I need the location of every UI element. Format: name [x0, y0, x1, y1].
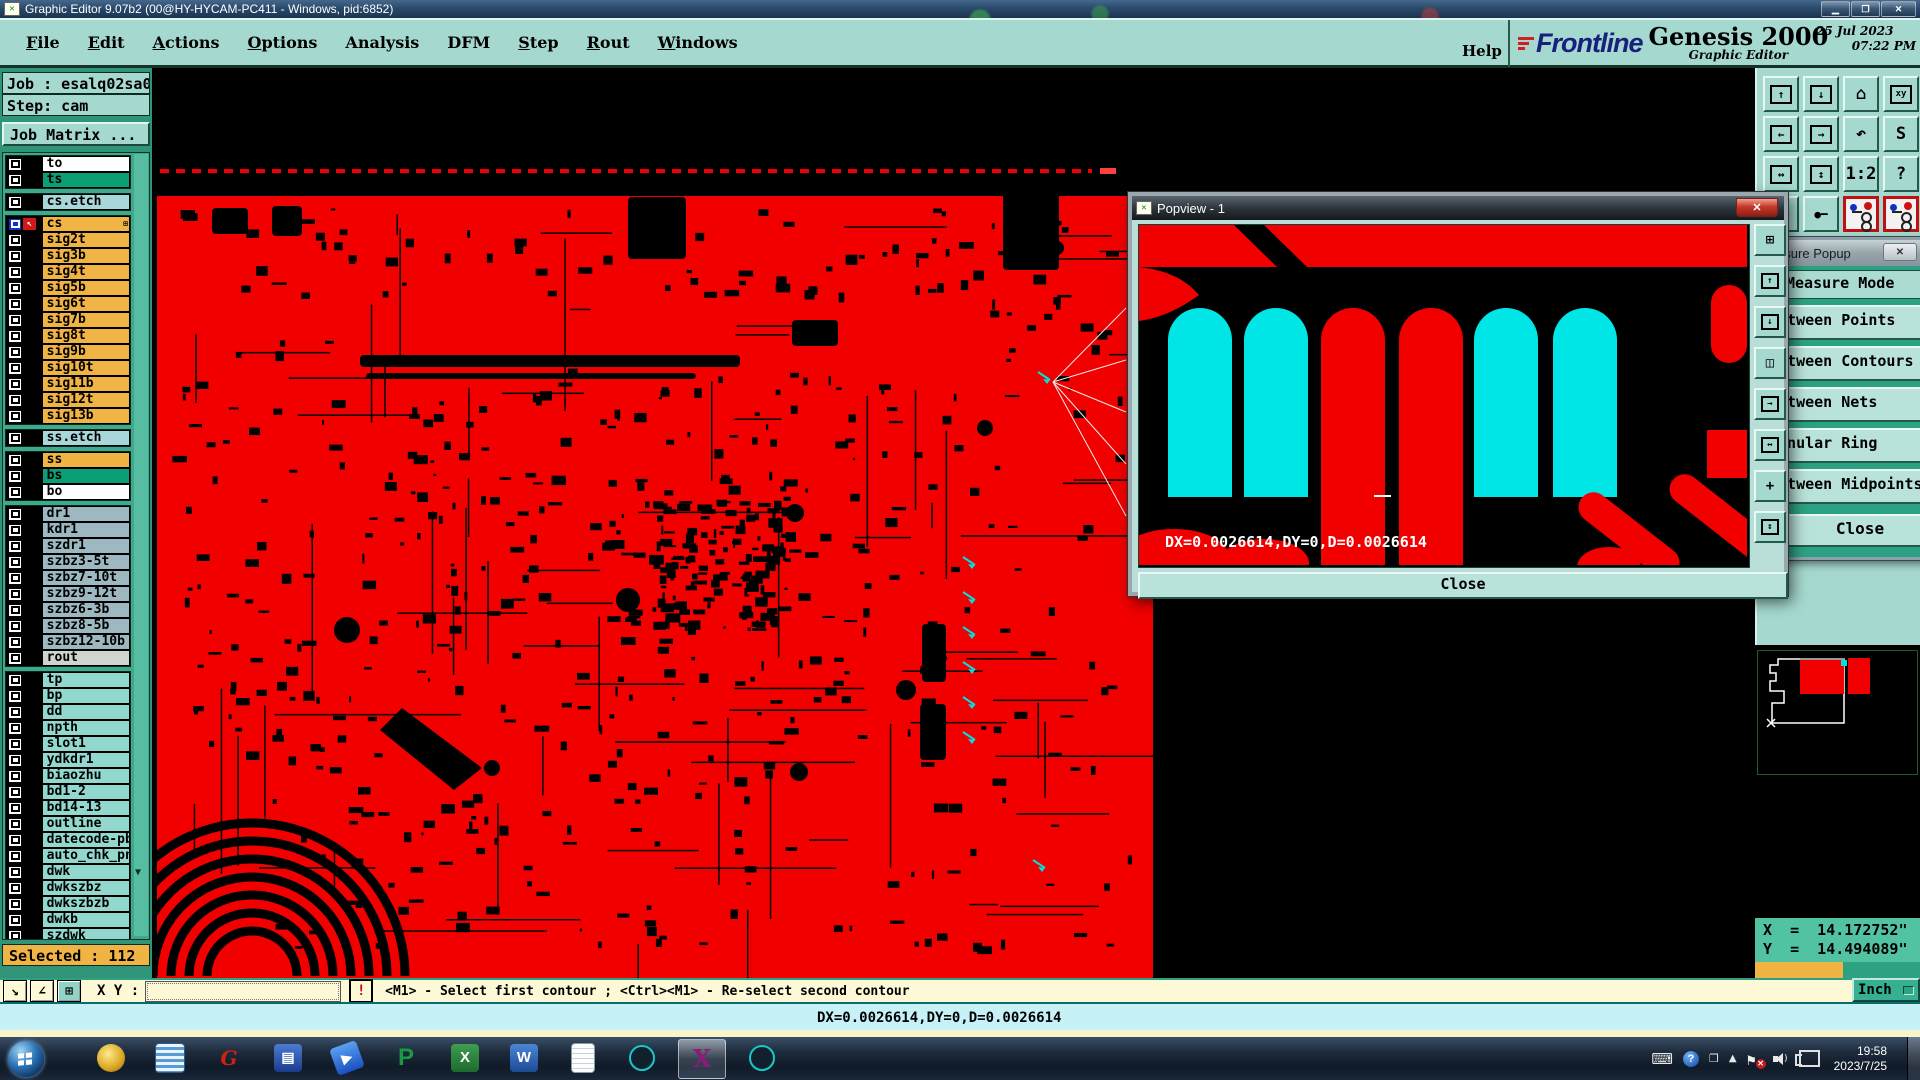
lens-app-icon-glyph	[629, 1045, 655, 1071]
layer-name: szbz8-5b	[43, 618, 130, 634]
layer-row-bd1-2[interactable]: bd1-2	[6, 784, 130, 800]
units-block: Inch	[1852, 978, 1920, 1002]
layer-group: tpbpddnpthslot1ydkdr1biaozhubd1-2bd14-13…	[5, 671, 131, 940]
layer-checkbox[interactable]	[9, 235, 21, 246]
layer-row-szdwk[interactable]: szdwk	[6, 928, 130, 940]
clipboard-out-button[interactable]: ↓	[1803, 76, 1839, 112]
layer-checkbox[interactable]	[9, 331, 21, 342]
layer-checkbox[interactable]	[9, 433, 21, 444]
grid-mode-button[interactable]: ⊞	[57, 980, 81, 1002]
cursor-coordinates: X = 14.172752" Y = 14.494089"	[1755, 918, 1920, 962]
layer-row-sig12t[interactable]: sig12t	[6, 392, 130, 408]
layer-row-ydkdr1[interactable]: ydkdr1	[6, 752, 130, 768]
layer-list: totscs.etch↖cs⊞sig2tsig3bsig4tsig5bsig6t…	[2, 152, 150, 940]
menu-dfm[interactable]: DFM	[433, 27, 504, 58]
layer-name: sig9b	[43, 344, 130, 360]
layer-checkbox[interactable]	[9, 509, 21, 520]
checkbox-strip	[6, 768, 43, 784]
close-button[interactable]: ✕	[1881, 1, 1916, 17]
window-title: Graphic Editor 9.07b2 (00@HY-HYCAM-PC411…	[25, 2, 393, 16]
clipboard-in-button[interactable]: ↑	[1763, 76, 1799, 112]
layer-name: ts	[43, 172, 130, 188]
fit-view-button[interactable]: ↔	[1754, 429, 1786, 461]
layer-row-bd14-13[interactable]: bd14-13	[6, 800, 130, 816]
layer-name: sig2t	[43, 232, 130, 248]
layer-checkbox[interactable]	[9, 803, 21, 814]
layer-name: biaozhu	[43, 768, 130, 784]
checkbox-strip	[6, 570, 43, 586]
layer-name: sig11b	[43, 376, 130, 392]
layer-name: cs⊞	[43, 216, 130, 232]
layer-row-bo[interactable]: bo	[6, 484, 130, 500]
menu-rout[interactable]: Rout	[573, 27, 644, 58]
netlist-b-button-glyph	[1886, 199, 1916, 229]
checkbox-strip	[6, 816, 43, 832]
checkbox-strip	[6, 156, 43, 172]
active-layer-arrow-icon: ↖	[23, 218, 36, 230]
layer-checkbox[interactable]	[9, 723, 21, 734]
layer-name: dwk	[43, 864, 130, 880]
layer-row-cs.etch[interactable]: cs.etch	[6, 194, 130, 210]
messenger-app-icon-glyph: ▶	[329, 1040, 365, 1076]
checkbox-strip: ↖	[6, 216, 43, 232]
popview-title: Popview - 1	[1157, 201, 1225, 216]
g-app-icon-glyph: G	[215, 1044, 243, 1072]
layer-name: sig3b	[43, 248, 130, 264]
zoom-1-2-button[interactable]: 1:2	[1843, 156, 1879, 192]
s-path-button[interactable]: S	[1883, 116, 1919, 152]
angle-mode-button[interactable]: ∠	[30, 980, 54, 1002]
pan-left-button[interactable]: ←	[1763, 116, 1799, 152]
layer-checkbox[interactable]	[9, 197, 21, 208]
layer-row-datecode-pbo[interactable]: datecode-pbo	[6, 832, 130, 848]
layer-checkbox[interactable]	[9, 411, 21, 422]
layer-name: tp	[43, 672, 130, 688]
layer-row-dwkszbzb[interactable]: dwkszbzb	[6, 896, 130, 912]
layer-row-dwkszbz[interactable]: dwkszbz	[6, 880, 130, 896]
notepad-app-icon[interactable]	[560, 1039, 606, 1077]
layer-row-biaozhu[interactable]: biaozhu	[6, 768, 130, 784]
layer-checkbox[interactable]	[9, 283, 21, 294]
layer-row-bs[interactable]: bs	[6, 468, 130, 484]
layer-row-sig4t[interactable]: sig4t	[6, 264, 130, 280]
popview-toolbar: ⊞↑↓◫→↔+↕	[1754, 224, 1784, 543]
layer-group: ssbsbo	[5, 451, 131, 501]
pointer-mode-button[interactable]: ↘	[3, 980, 27, 1002]
menu-bar-items: FileEditActionsOptionsAnalysisDFMStepRou…	[0, 27, 752, 58]
checkbox-strip	[6, 408, 43, 424]
prompt-message: <M1> - Select first contour ; <Ctrl><M1>…	[385, 984, 909, 999]
layer-group: ↖cs⊞sig2tsig3bsig4tsig5bsig6tsig7bsig8ts…	[5, 215, 131, 425]
netlist-b-button[interactable]	[1883, 196, 1919, 232]
notes-app-icon[interactable]	[147, 1039, 193, 1077]
layer-row-szdr1[interactable]: szdr1	[6, 538, 130, 554]
alert-button[interactable]: !	[349, 979, 373, 1003]
action-center-icon[interactable]: ⚑✕	[1747, 1050, 1763, 1068]
layer-checkbox[interactable]	[9, 771, 21, 782]
layer-checkbox[interactable]	[9, 315, 21, 326]
layer-row-szbz12-10b[interactable]: szbz12-10b	[6, 634, 130, 650]
layer-row-slot1[interactable]: slot1	[6, 736, 130, 752]
layer-checkbox[interactable]	[9, 851, 21, 862]
menu-options[interactable]: Options	[234, 27, 332, 58]
stretch-v-button[interactable]: ↕	[1803, 156, 1839, 192]
layer-name: bd1-2	[43, 784, 130, 800]
hidden-icons-button[interactable]: ▲	[1729, 1053, 1737, 1064]
help-tray-icon[interactable]: ?	[1683, 1051, 1699, 1067]
popview-titlebar[interactable]: ✕ Popview - 1 ✕	[1132, 196, 1784, 220]
layer-row-sig3b[interactable]: sig3b	[6, 248, 130, 264]
checkbox-strip	[6, 232, 43, 248]
layer-row-rout[interactable]: rout	[6, 650, 130, 666]
split-view-button[interactable]: ◫	[1754, 347, 1786, 379]
layer-row-sig7b[interactable]: sig7b	[6, 312, 130, 328]
layer-name: dwkszbzb	[43, 896, 130, 912]
checkbox-strip	[6, 832, 43, 848]
layer-checkbox[interactable]	[9, 159, 21, 170]
layer-row-szbz8-5b[interactable]: szbz8-5b	[6, 618, 130, 634]
x-app-icon-glyph: X	[688, 1045, 716, 1073]
layer-row-dr1[interactable]: dr1	[6, 506, 130, 522]
layer-checkbox[interactable]	[9, 637, 21, 648]
netlist-a-button-glyph	[1846, 199, 1876, 229]
layer-row-dwk[interactable]: dwk	[6, 864, 130, 880]
layer-row-dwkb[interactable]: dwkb	[6, 912, 130, 928]
layer-checkbox[interactable]	[9, 653, 21, 664]
layer-checkbox[interactable]	[9, 541, 21, 552]
undo-view-button[interactable]: ↶	[1843, 116, 1879, 152]
layer-group: ss.etch	[5, 429, 131, 447]
measurement-readout: DX=0.0026614,DY=0,D=0.0026614	[1165, 533, 1427, 551]
layer-row-dd[interactable]: dd	[6, 704, 130, 720]
frontline-stripes-icon	[1518, 37, 1534, 50]
layer-checkbox[interactable]	[9, 347, 21, 358]
layer-row-sig11b[interactable]: sig11b	[6, 376, 130, 392]
units-dropdown[interactable]: Inch	[1852, 978, 1920, 1002]
app-icon: ✕	[4, 2, 20, 16]
layer-row-szbz6-3b[interactable]: szbz6-3b	[6, 602, 130, 618]
status-measurement: DX=0.0026614,DY=0,D=0.0026614	[817, 1010, 1061, 1026]
layer-checkbox[interactable]	[9, 915, 21, 926]
menu-step[interactable]: Step	[504, 27, 572, 58]
layer-checkbox[interactable]	[9, 267, 21, 278]
layer-name: szbz12-10b	[43, 634, 130, 650]
excel-app-icon-glyph: X	[451, 1044, 479, 1072]
checkbox-strip	[6, 264, 43, 280]
checkbox-strip	[6, 392, 43, 408]
checkbox-strip	[6, 618, 43, 634]
layer-name: szbz7-10t	[43, 570, 130, 586]
keyboard-tray-icon[interactable]: ⌨	[1651, 1050, 1673, 1068]
layer-checkbox[interactable]	[9, 557, 21, 568]
lens-app-icon[interactable]	[619, 1039, 665, 1077]
minimize-button[interactable]: ▁	[1821, 1, 1850, 17]
layer-name: sig7b	[43, 312, 130, 328]
popview-close-button[interactable]: Close	[1138, 572, 1788, 599]
taskbar-apps: G▤▶PXWX	[88, 1039, 785, 1079]
popview-icon: ✕	[1136, 201, 1152, 215]
layer-checkbox[interactable]	[9, 471, 21, 482]
layer-checkbox[interactable]	[9, 379, 21, 390]
layer-checkbox[interactable]	[9, 621, 21, 632]
checkbox-strip	[6, 880, 43, 896]
mode-buttons: ↘∠⊞	[0, 980, 87, 1002]
step-label: Step: cam	[2, 94, 150, 116]
checkbox-strip	[6, 752, 43, 768]
layer-checkbox[interactable]	[9, 707, 21, 718]
product-name: Genesis 2000	[1649, 26, 1829, 48]
layer-name: bo	[43, 484, 130, 500]
menu-analysis[interactable]: Analysis	[331, 27, 433, 58]
network-icon[interactable]	[1799, 1050, 1820, 1067]
layer-row-bp[interactable]: bp	[6, 688, 130, 704]
layer-row-outline[interactable]: outline	[6, 816, 130, 832]
menu-file[interactable]: File	[12, 27, 74, 58]
layer-name: cs.etch	[43, 194, 130, 210]
layer-checkbox[interactable]	[9, 363, 21, 374]
layer-plus-icon: ⊞	[123, 220, 128, 228]
checkbox-strip	[6, 602, 43, 618]
layer-checkbox[interactable]	[9, 487, 21, 498]
layer-row-szbz3-5t[interactable]: szbz3-5t	[6, 554, 130, 570]
layer-name: sig13b	[43, 408, 130, 424]
layer-row-cs[interactable]: ↖cs⊞	[6, 216, 130, 232]
menu-bar: FileEditActionsOptionsAnalysisDFMStepRou…	[0, 18, 1920, 68]
layer-row-auto_chk_pnl[interactable]: auto_chk_pnl	[6, 848, 130, 864]
layer-row-sig6t[interactable]: sig6t	[6, 296, 130, 312]
layer-checkbox[interactable]	[9, 605, 21, 616]
window-xy-button[interactable]: xy	[1883, 76, 1919, 112]
netlist-a-button[interactable]	[1843, 196, 1879, 232]
shell-app-icon-glyph	[97, 1044, 125, 1072]
layer-name: sig6t	[43, 296, 130, 312]
checkbox-strip	[6, 296, 43, 312]
center-view-button[interactable]: +	[1754, 470, 1786, 502]
layer-checkbox[interactable]	[9, 931, 21, 941]
layer-name: ss.etch	[43, 430, 130, 446]
xy-label: X Y :	[97, 983, 139, 999]
checkbox-strip	[6, 650, 43, 666]
layer-checkbox[interactable]	[9, 395, 21, 406]
checkbox-strip	[6, 928, 43, 940]
layer-name: dwkb	[43, 912, 130, 928]
layer-checkbox[interactable]	[9, 573, 21, 584]
layer-name: sig8t	[43, 328, 130, 344]
x-app-icon[interactable]: X	[678, 1039, 726, 1079]
dropdown-indicator-icon	[1903, 986, 1914, 995]
layer-row-ts[interactable]: ts	[6, 172, 130, 188]
menu-help[interactable]: Help	[1462, 42, 1502, 60]
layer-checkbox[interactable]	[9, 589, 21, 600]
datetime-display: 25 Jul 2023 07:22 PM	[1816, 24, 1916, 54]
checkbox-strip	[6, 634, 43, 650]
checkbox-strip	[6, 554, 43, 570]
p-app-icon-glyph: P	[392, 1044, 420, 1072]
checkbox-strip	[6, 328, 43, 344]
layer-checkbox[interactable]	[9, 251, 21, 262]
checkbox-strip	[6, 586, 43, 602]
layer-row-sig9b[interactable]: sig9b	[6, 344, 130, 360]
menu-windows[interactable]: Windows	[644, 27, 752, 58]
layer-name: sig4t	[43, 264, 130, 280]
checkbox-strip	[6, 704, 43, 720]
layer-row-tp[interactable]: tp	[6, 672, 130, 688]
maximize-button[interactable]: ❐	[1851, 1, 1880, 17]
help-button[interactable]: ?	[1883, 156, 1919, 192]
layer-checkbox[interactable]	[9, 899, 21, 910]
expand-view-button[interactable]: ↕	[1754, 511, 1786, 543]
checkbox-strip	[6, 430, 43, 446]
layer-row-sig8t[interactable]: sig8t	[6, 328, 130, 344]
g-app-icon[interactable]: G	[206, 1039, 252, 1077]
layer-name: dd	[43, 704, 130, 720]
layer-name: bs	[43, 468, 130, 484]
lens2-app-icon[interactable]	[739, 1039, 785, 1077]
checkbox-strip	[6, 688, 43, 704]
layer-row-kdr1[interactable]: kdr1	[6, 522, 130, 538]
layer-scrollbar[interactable]: ▼	[134, 154, 148, 936]
view-down-button[interactable]: ↓	[1754, 306, 1786, 338]
layer-checkbox[interactable]	[9, 219, 21, 230]
corner-filler	[1843, 962, 1920, 978]
menu-actions[interactable]: Actions	[139, 27, 234, 58]
checkbox-strip	[6, 360, 43, 376]
layer-row-sig13b[interactable]: sig13b	[6, 408, 130, 424]
checkbox-strip	[6, 484, 43, 500]
layer-name: datecode-pbo	[43, 832, 130, 848]
floppy-64-app-icon[interactable]: ▤	[265, 1039, 311, 1077]
stretch-h-button[interactable]: ↔	[1763, 156, 1799, 192]
layer-checkbox[interactable]	[9, 739, 21, 750]
layer-row-ss[interactable]: ss	[6, 452, 130, 468]
status-accent-bar	[1755, 962, 1843, 978]
word-app-icon[interactable]: W	[501, 1039, 547, 1077]
layer-name: sig5b	[43, 280, 130, 296]
menu-edit[interactable]: Edit	[74, 27, 139, 58]
checkbox-strip	[6, 736, 43, 752]
layer-checkbox[interactable]	[9, 299, 21, 310]
volume-icon[interactable]: )	[1773, 1052, 1789, 1066]
job-matrix-button[interactable]: Job Matrix ...	[2, 122, 150, 146]
layer-group: dr1kdr1szdr1szbz3-5tszbz7-10tszbz9-12tsz…	[5, 505, 131, 667]
layer-row-npth[interactable]: npth	[6, 720, 130, 736]
measure-close-icon[interactable]: ✕	[1883, 243, 1917, 261]
popview-window: ✕ Popview - 1 ✕ DX=0.0026614,DY=0,D=0.00…	[1128, 192, 1788, 596]
taskbar-clock[interactable]: 19:58 2023/7/25	[1834, 1044, 1887, 1074]
layer-checkbox[interactable]	[9, 867, 21, 878]
layer-name: ydkdr1	[43, 752, 130, 768]
pan-right-button[interactable]: →	[1803, 116, 1839, 152]
layer-row-sig5b[interactable]: sig5b	[6, 280, 130, 296]
checkbox-strip	[6, 720, 43, 736]
view-up-button[interactable]: ↑	[1754, 265, 1786, 297]
system-tray: ⌨ ? ❐ ▲ ⚑✕ ) 19:58 2023/7/25	[1651, 1037, 1920, 1080]
layer-name: bp	[43, 688, 130, 704]
layer-checkbox[interactable]	[9, 175, 21, 186]
selected-count: Selected : 112	[2, 944, 150, 966]
layer-row-sig2t[interactable]: sig2t	[6, 232, 130, 248]
layer-checkbox[interactable]	[9, 883, 21, 894]
layer-row-ss.etch[interactable]: ss.etch	[6, 430, 130, 446]
popview-close-icon[interactable]: ✕	[1736, 198, 1778, 217]
layer-checkbox[interactable]	[9, 787, 21, 798]
layer-checkbox[interactable]	[9, 755, 21, 766]
job-label: Job : esalq02sa0	[2, 72, 150, 94]
layer-name: rout	[43, 650, 130, 666]
layer-name: szbz3-5t	[43, 554, 130, 570]
layer-row-sig10t[interactable]: sig10t	[6, 360, 130, 376]
layer-checkbox[interactable]	[9, 691, 21, 702]
layer-checkbox[interactable]	[9, 525, 21, 536]
layer-checkbox[interactable]	[9, 455, 21, 466]
layer-name: sig10t	[43, 360, 130, 376]
layer-name: auto_chk_pnl	[43, 848, 130, 864]
layer-group: cs.etch	[5, 193, 131, 211]
layer-row-szbz9-12t[interactable]: szbz9-12t	[6, 586, 130, 602]
popview-new-button[interactable]: ⊞	[1754, 224, 1786, 256]
overview-minimap[interactable]	[1757, 650, 1918, 775]
layer-group: tots	[5, 155, 131, 189]
notepad-app-icon-glyph	[571, 1043, 595, 1073]
layer-name: dwkszbz	[43, 880, 130, 896]
layer-row-to[interactable]: to	[6, 156, 130, 172]
layer-name: to	[43, 156, 130, 172]
popup-tray-icon[interactable]: ❐	[1709, 1052, 1719, 1065]
pan-view-button[interactable]: →	[1754, 388, 1786, 420]
layer-checkbox[interactable]	[9, 835, 21, 846]
show-desktop-button[interactable]	[1907, 1037, 1920, 1080]
notes-app-icon-glyph	[155, 1043, 185, 1073]
layer-name: ss	[43, 452, 130, 468]
checkbox-strip	[6, 468, 43, 484]
taskbar-edge	[0, 1030, 1920, 1037]
layer-name: szbz6-3b	[43, 602, 130, 618]
layer-checkbox[interactable]	[9, 819, 21, 830]
checkbox-strip	[6, 864, 43, 880]
checkbox-strip	[6, 896, 43, 912]
checkbox-strip	[6, 172, 43, 188]
lens2-app-icon-glyph	[749, 1045, 775, 1071]
checkbox-strip	[6, 280, 43, 296]
layer-name: sig12t	[43, 392, 130, 408]
frontline-logo: Frontline	[1518, 28, 1643, 59]
layer-row-szbz7-10t[interactable]: szbz7-10t	[6, 570, 130, 586]
trace-mode-button[interactable]: ●━	[1803, 196, 1839, 232]
checkbox-strip	[6, 248, 43, 264]
start-button[interactable]	[8, 1041, 44, 1077]
checkbox-strip	[6, 784, 43, 800]
layer-name: npth	[43, 720, 130, 736]
floppy-64-app-icon-glyph: ▤	[274, 1044, 302, 1072]
home-view-button[interactable]: ⌂	[1843, 76, 1879, 112]
window-titlebar[interactable]: ✕ Graphic Editor 9.07b2 (00@HY-HYCAM-PC4…	[0, 0, 1920, 18]
popview-viewport[interactable]: DX=0.0026614,DY=0,D=0.0026614	[1138, 224, 1750, 568]
p-app-icon[interactable]: P	[383, 1039, 429, 1077]
excel-app-icon[interactable]: X	[442, 1039, 488, 1077]
layer-name: szdr1	[43, 538, 130, 554]
layer-name: slot1	[43, 736, 130, 752]
layer-checkbox[interactable]	[9, 675, 21, 686]
layer-name: outline	[43, 816, 130, 832]
xy-input[interactable]	[145, 981, 341, 1002]
checkbox-strip	[6, 672, 43, 688]
word-app-icon-glyph: W	[510, 1044, 538, 1072]
messenger-app-icon[interactable]: ▶	[324, 1039, 370, 1077]
scroll-down-icon[interactable]: ▼	[135, 867, 141, 878]
windows-taskbar: G▤▶PXWX ⌨ ? ❐ ▲ ⚑✕ ) 19:58 2023/7/25	[0, 1037, 1920, 1080]
shell-app-icon[interactable]	[88, 1039, 134, 1077]
layer-name: dr1	[43, 506, 130, 522]
